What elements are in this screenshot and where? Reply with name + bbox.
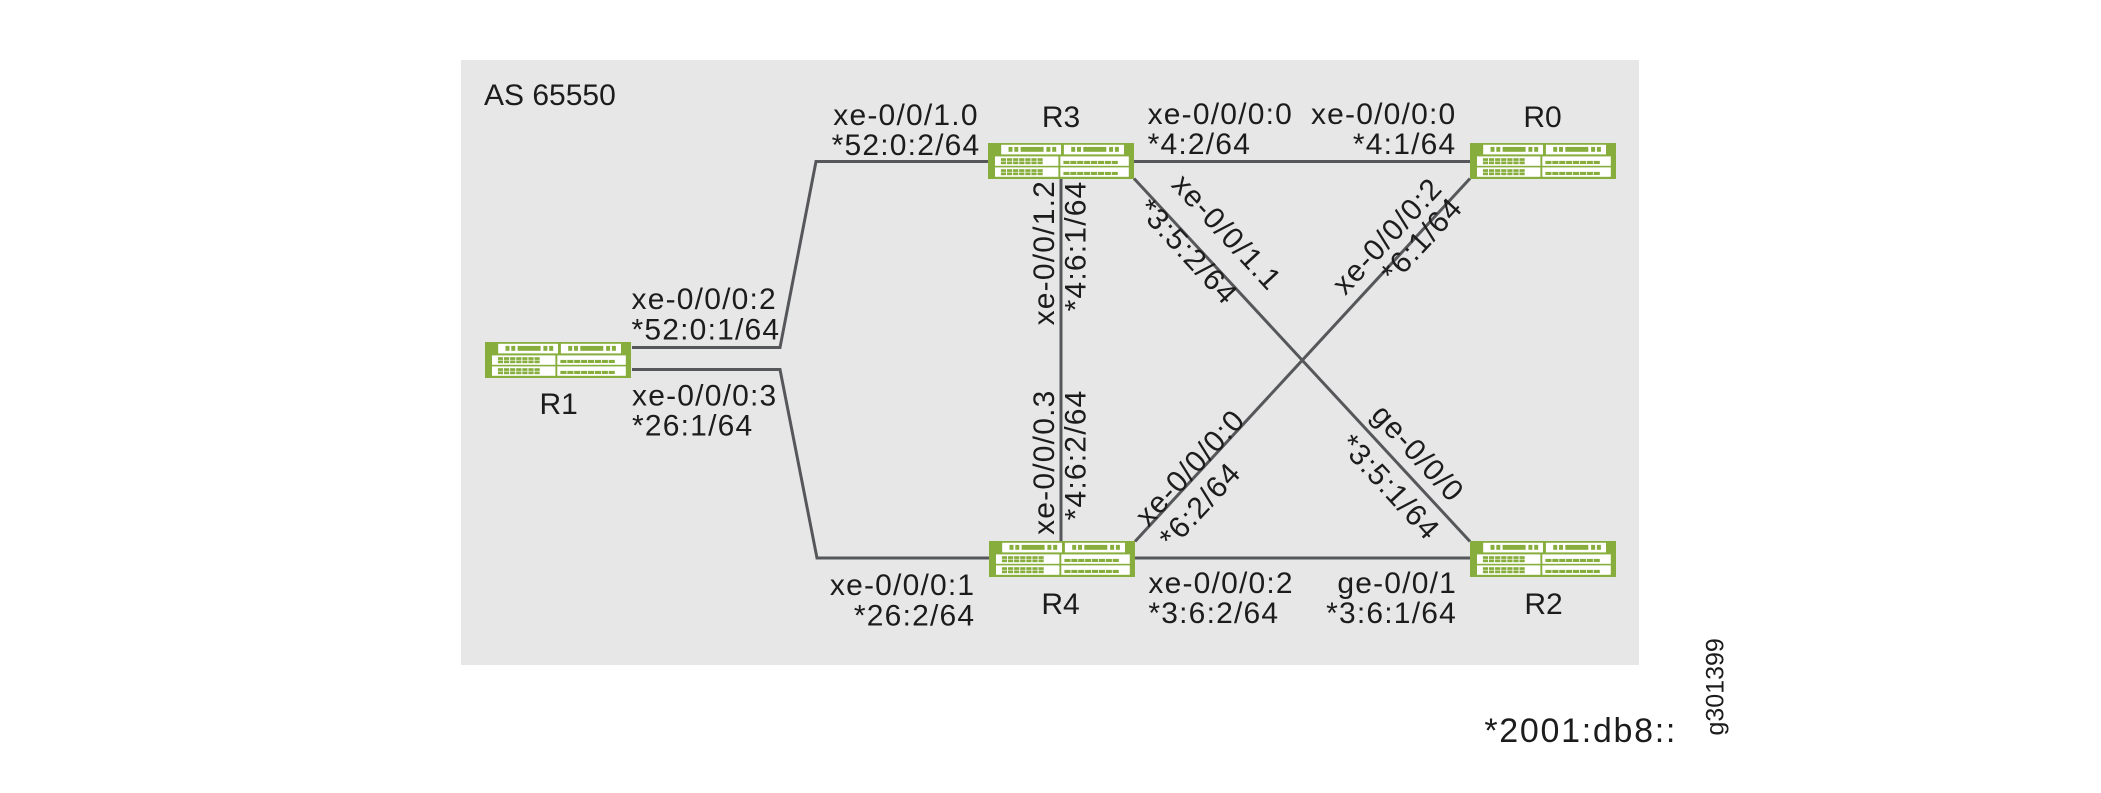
svg-text:ge-0/0/1*3:6:1/64: ge-0/0/1*3:6:1/64 [1326, 567, 1457, 630]
svg-text:R3: R3 [1042, 101, 1080, 134]
svg-text:xe-0/0/1.2: xe-0/0/1.2 [1028, 180, 1061, 325]
svg-text:R1: R1 [540, 388, 578, 421]
svg-text:R4: R4 [1041, 588, 1079, 621]
svg-text:xe-0/0/1.0*52:0:2/64: xe-0/0/1.0*52:0:2/64 [832, 99, 981, 162]
svg-text:xe-0/0/0:2*52:0:1/64: xe-0/0/0:2*52:0:1/64 [632, 283, 781, 346]
svg-text:*4:6:2/64: *4:6:2/64 [1060, 390, 1093, 521]
svg-text:R0: R0 [1523, 101, 1561, 134]
svg-text:xe-0/0/0.3: xe-0/0/0.3 [1028, 390, 1061, 535]
svg-text:AS 65550: AS 65550 [484, 79, 616, 112]
svg-text:g301399: g301399 [1702, 638, 1730, 735]
svg-text:xe-0/0/0:2*3:6:2/64: xe-0/0/0:2*3:6:2/64 [1148, 567, 1293, 630]
svg-text:R2: R2 [1524, 588, 1562, 621]
svg-text:*2001:db8::: *2001:db8:: [1484, 712, 1677, 750]
svg-text:*4:6:1/64: *4:6:1/64 [1060, 181, 1093, 312]
